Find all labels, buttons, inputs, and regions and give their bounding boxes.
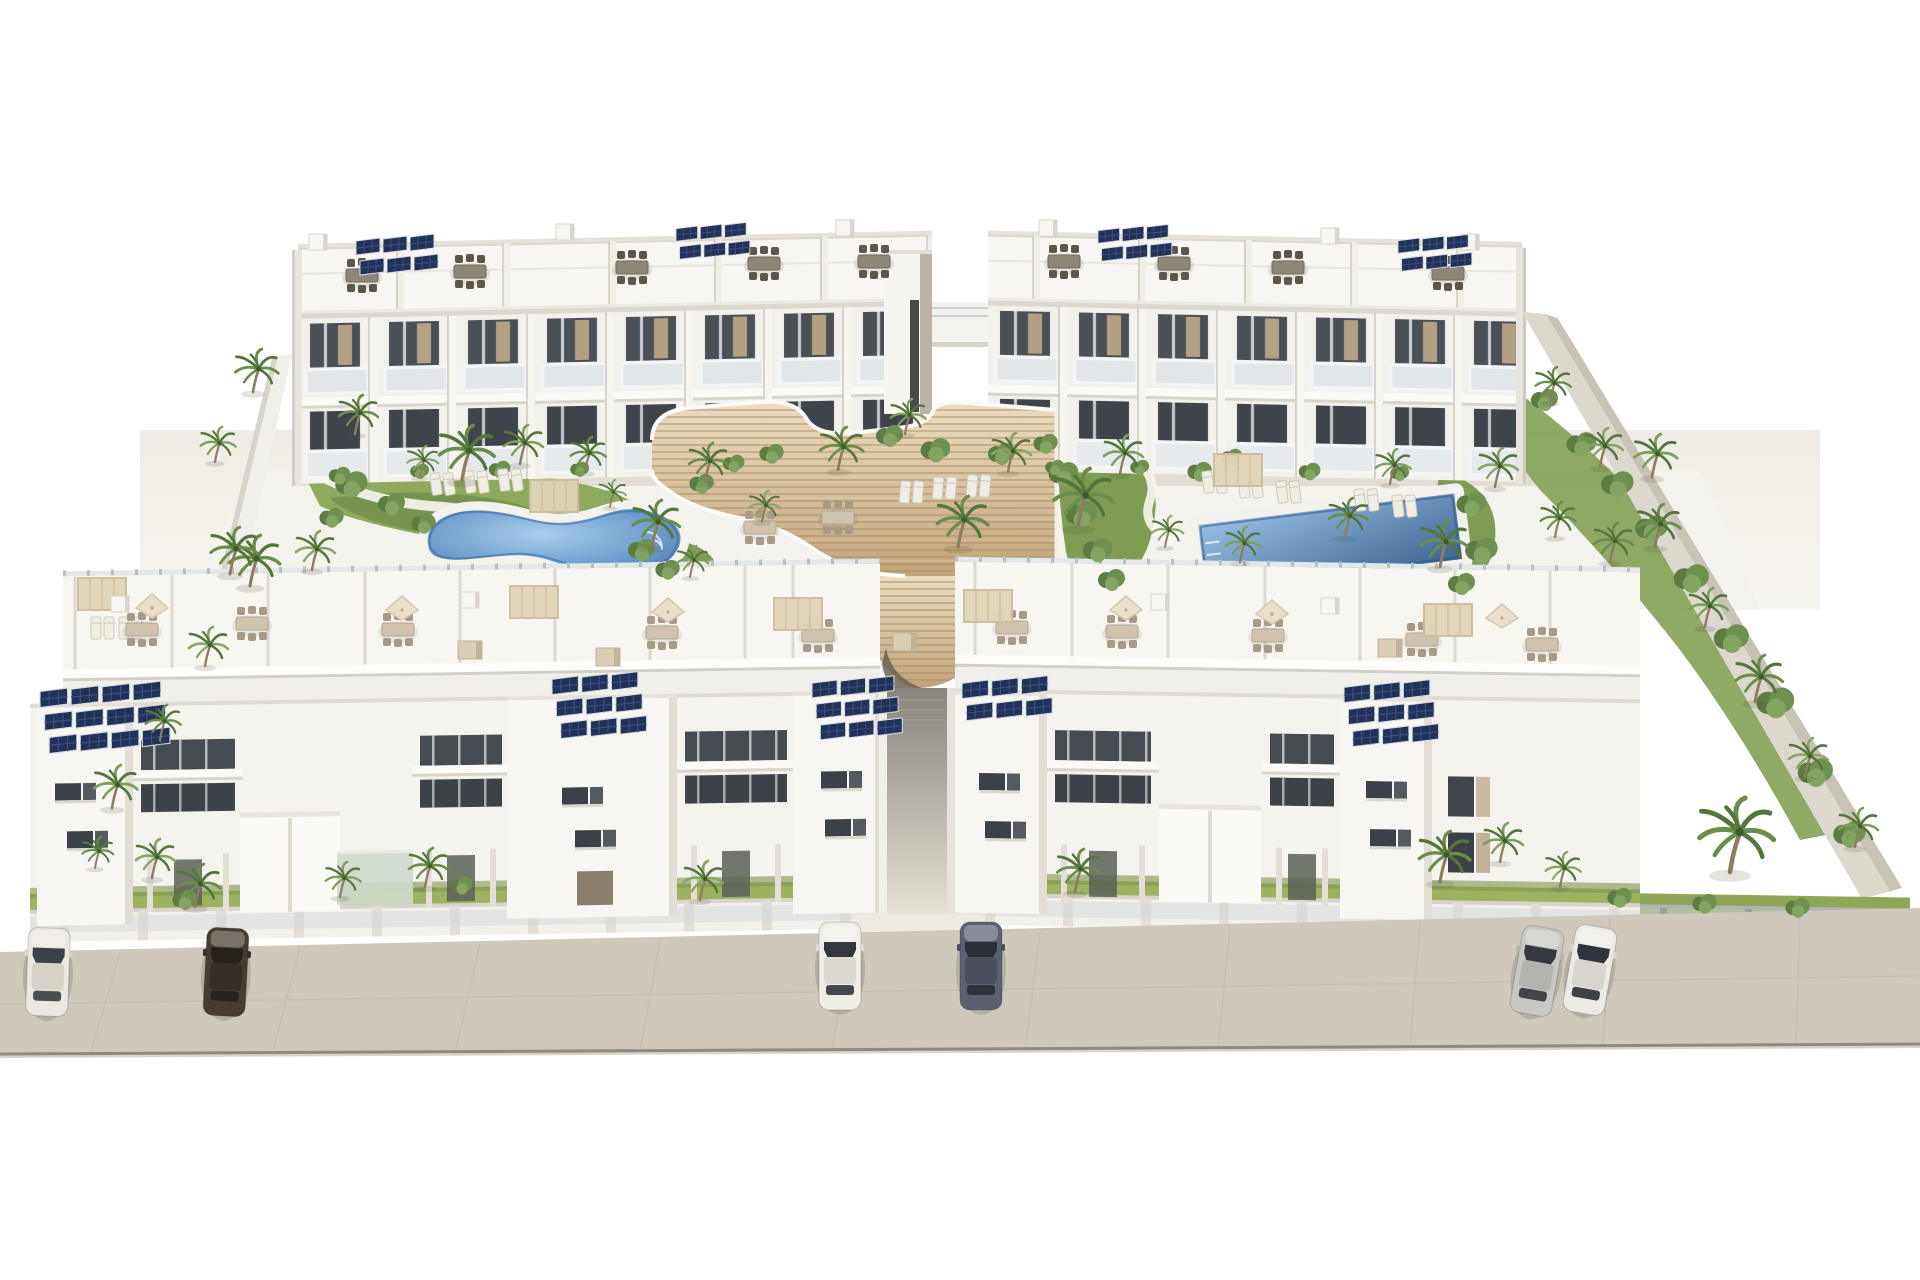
solar-panel: [76, 709, 104, 729]
solar-panel: [1147, 224, 1169, 239]
sun-lounger: [1289, 480, 1302, 503]
solar-panel: [71, 686, 99, 706]
solar-panel: [1412, 724, 1438, 743]
solar-panel: [45, 711, 73, 731]
solar-panel: [1422, 236, 1444, 251]
solar-panel: [1426, 254, 1448, 269]
solar-panel: [962, 680, 988, 699]
solar-panel: [620, 716, 646, 735]
roof-bulkhead: [461, 592, 479, 608]
roof-bulkhead: [1151, 594, 1169, 610]
pergola-canopy: [1424, 604, 1472, 636]
roof-bulkhead: [1321, 598, 1339, 614]
solar-panel: [556, 698, 582, 717]
solar-panel: [1398, 238, 1420, 253]
roof-bulkhead: [309, 234, 327, 250]
solar-panel: [1447, 234, 1469, 249]
solar-panel: [133, 681, 161, 701]
solar-panel: [840, 678, 865, 696]
solar-panel: [873, 697, 898, 715]
solar-panel: [1026, 698, 1052, 717]
render-canvas: [0, 0, 1920, 1280]
roof-ac-unit: [893, 633, 917, 651]
solar-panel: [40, 688, 68, 708]
solar-panel: [1374, 682, 1400, 701]
solar-panel: [582, 674, 608, 693]
solar-panel: [1408, 702, 1434, 721]
solar-panel: [111, 729, 139, 749]
solar-panel: [616, 694, 642, 713]
solar-panel: [704, 242, 726, 257]
roof-bulkhead: [111, 596, 129, 612]
roof-ac-unit: [458, 641, 482, 659]
solar-panel: [387, 256, 411, 273]
solar-panel: [992, 678, 1018, 697]
solar-panel: [383, 236, 407, 253]
roof-bulkhead: [836, 220, 854, 236]
sun-lounger: [1392, 494, 1405, 517]
dark-brown-sedan-left: [198, 927, 253, 1022]
pergola-canopy: [530, 480, 578, 512]
solar-panel: [1126, 244, 1148, 259]
pergola-canopy: [964, 590, 1012, 622]
solar-panel: [1344, 684, 1370, 703]
white-sedan-far-left: [21, 927, 74, 1022]
solar-panel: [728, 240, 750, 255]
solar-panel: [676, 226, 698, 241]
sun-lounger: [104, 617, 114, 639]
solar-panel: [1450, 252, 1472, 267]
solar-panel-array: [812, 676, 902, 740]
solar-panel: [1021, 676, 1047, 695]
slate-blue-sedan-center: [956, 922, 1006, 1015]
solar-panel: [1348, 706, 1374, 725]
solar-panel: [1378, 704, 1404, 723]
sun-lounger: [1367, 488, 1380, 511]
solar-panel: [680, 244, 702, 259]
terrace-dining-set: [642, 615, 682, 650]
sun-lounger: [932, 477, 944, 500]
white-sedan-center: [815, 922, 865, 1015]
solar-panel: [360, 258, 384, 275]
solar-panel: [1353, 728, 1379, 747]
solar-panel: [552, 676, 578, 695]
solar-panel: [869, 676, 894, 694]
solar-panel: [816, 701, 841, 719]
solar-panel: [611, 672, 637, 691]
roof-ac-unit: [596, 648, 620, 666]
roof-dining-set: [450, 254, 490, 289]
roof-bulkhead: [1321, 228, 1339, 244]
solar-panel: [586, 696, 612, 715]
terrace-dining-set: [232, 606, 272, 641]
solar-panel: [725, 222, 747, 237]
solar-panel: [1122, 226, 1144, 241]
terrace-dining-set: [122, 612, 162, 647]
render-stage: [0, 0, 1920, 1280]
facade-garage-box: [240, 811, 340, 913]
solar-panel: [996, 700, 1022, 719]
solar-panel: [1402, 256, 1424, 271]
solar-panel: [102, 683, 130, 703]
solar-panel: [49, 734, 77, 754]
solar-panel: [849, 720, 874, 738]
solar-panel: [107, 706, 135, 726]
solar-panel: [1403, 680, 1429, 699]
solar-panel: [700, 224, 722, 239]
terrace-dining-set: [818, 500, 858, 535]
solar-panel: [820, 722, 845, 740]
roof-dining-set: [1268, 250, 1308, 285]
solar-panel: [812, 680, 837, 698]
roof-dining-set: [1044, 244, 1084, 279]
sun-lounger: [979, 475, 991, 498]
sun-lounger: [1276, 480, 1289, 503]
terrace-dining-set: [740, 510, 780, 545]
solar-panel: [561, 720, 587, 739]
roof-dining-set: [612, 250, 652, 285]
roof-bulkhead: [556, 224, 574, 240]
roof-bulkhead: [1039, 220, 1057, 236]
solar-panel: [356, 238, 380, 255]
solar-panel: [1102, 246, 1124, 261]
pergola-canopy: [1214, 454, 1262, 486]
terrace-dining-set: [1248, 618, 1288, 653]
solar-panel: [845, 699, 870, 717]
sun-lounger: [966, 475, 978, 498]
sun-lounger: [91, 617, 101, 639]
solar-panel: [414, 254, 438, 271]
solar-panel: [966, 702, 992, 721]
solar-panel: [1150, 242, 1172, 257]
solar-panel-array: [1344, 680, 1439, 747]
pergola-canopy: [774, 598, 822, 630]
solar-panel: [591, 718, 617, 737]
solar-panel: [80, 732, 108, 752]
solar-panel: [1383, 726, 1409, 745]
solar-panel: [877, 718, 902, 736]
terrace-dining-set: [1102, 614, 1142, 649]
solar-panel: [410, 234, 434, 251]
solar-panel-array: [552, 672, 647, 739]
sun-lounger: [899, 481, 911, 504]
sun-lounger: [1405, 494, 1418, 517]
sun-lounger: [912, 481, 924, 504]
roof-dining-set: [854, 244, 894, 279]
solar-panel: [1098, 228, 1120, 243]
sun-lounger: [1202, 470, 1215, 493]
facade-garage-box: [1159, 804, 1261, 904]
pergola-canopy: [510, 586, 558, 618]
terrace-dining-set: [1522, 627, 1562, 662]
facade-tower: [955, 691, 1047, 914]
roof-ac-unit: [1378, 639, 1402, 657]
sun-lounger: [945, 477, 957, 500]
